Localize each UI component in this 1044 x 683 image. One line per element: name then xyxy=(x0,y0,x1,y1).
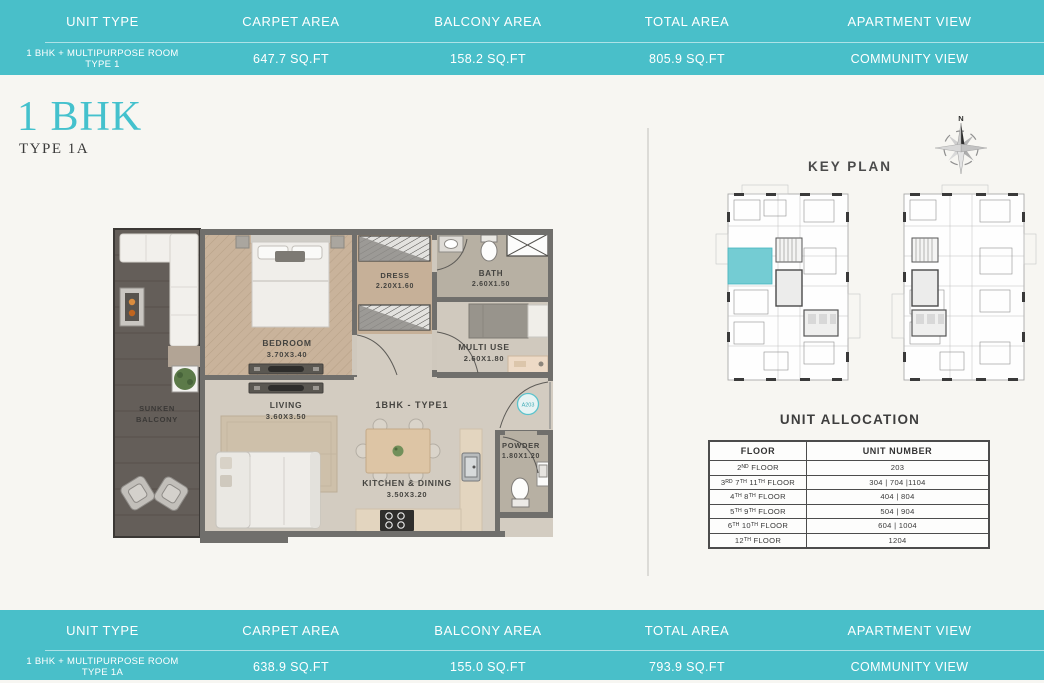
unit-allocation-title: UNIT ALLOCATION xyxy=(740,412,960,427)
label-dress: DRESS xyxy=(380,271,409,280)
sofa xyxy=(216,452,320,528)
cell-unit: 1204 xyxy=(807,533,990,548)
keyplan-building-right xyxy=(884,182,1044,392)
top-spec-bar: UNIT TYPE CARPET AREA BALCONY AREA TOTAL… xyxy=(0,0,1044,75)
page-title: 1 BHK TYPE 1A xyxy=(17,96,142,158)
table-row: 6ᵀᴴ 10ᵀᴴ FLOOR 604 | 1004 xyxy=(709,519,989,534)
unit-tag-badge: A203 xyxy=(518,394,539,415)
label-multiuse-dims: 2.60X1.80 xyxy=(464,354,505,363)
compass-north-label: N xyxy=(958,114,963,123)
top-spec-headers: UNIT TYPE CARPET AREA BALCONY AREA TOTAL… xyxy=(0,0,1044,42)
cell-floor: 4ᵀᴴ 8ᵀᴴ FLOOR xyxy=(709,490,807,505)
fire-pit xyxy=(120,288,144,326)
table-row: 4ᵀᴴ 8ᵀᴴ FLOOR 404 | 804 xyxy=(709,490,989,505)
col-header-floor: FLOOR xyxy=(709,441,807,461)
bottom-spec-values: 1 BHK + MULTIPURPOSE ROOM TYPE 1A 638.9 … xyxy=(0,651,1044,683)
unit-allocation-table: FLOOR UNIT NUMBER 2ᴺᴰ FLOOR 203 3ᴿᴰ 7ᵀᴴ … xyxy=(708,440,990,549)
label-bedroom: BEDROOM xyxy=(262,338,311,348)
table-row: 5ᵀᴴ 9ᵀᴴ FLOOR 504 | 904 xyxy=(709,504,989,519)
cell-floor: 12ᵀᴴ FLOOR xyxy=(709,533,807,548)
section-divider xyxy=(647,128,649,576)
header-carpet-area: CARPET AREA xyxy=(205,14,377,29)
title-main: 1 BHK xyxy=(17,96,142,138)
value-apartment-view: COMMUNITY VIEW xyxy=(775,660,1044,674)
value-unit-type: 1 BHK + MULTIPURPOSE ROOM TYPE 1 xyxy=(0,48,205,70)
unit-type-line1: 1 BHK + MULTIPURPOSE ROOM xyxy=(0,656,205,667)
table-row: 2ᴺᴰ FLOOR 203 xyxy=(709,461,989,476)
header-balcony-area: BALCONY AREA xyxy=(377,623,599,638)
header-apartment-view: APARTMENT VIEW xyxy=(775,623,1044,638)
label-powder: POWDER xyxy=(502,441,540,450)
cell-unit: 203 xyxy=(807,461,990,476)
cell-unit: 404 | 804 xyxy=(807,490,990,505)
unit-tag-text: A203 xyxy=(522,403,535,409)
header-apartment-view: APARTMENT VIEW xyxy=(775,14,1044,29)
table-row: 3ᴿᴰ 7ᵀᴴ 11ᵀᴴ FLOOR 304 | 704 |1104 xyxy=(709,475,989,490)
col-header-unit-number: UNIT NUMBER xyxy=(807,441,990,461)
header-unit-type: UNIT TYPE xyxy=(0,623,205,638)
bottom-spec-headers: UNIT TYPE CARPET AREA BALCONY AREA TOTAL… xyxy=(0,610,1044,650)
label-powder-dims: 1.80X1.20 xyxy=(502,453,540,460)
header-total-area: TOTAL AREA xyxy=(599,623,775,638)
label-kitchen: KITCHEN & DINING xyxy=(362,478,452,488)
keyplan-building-left xyxy=(708,182,868,392)
cell-unit: 304 | 704 |1104 xyxy=(807,475,990,490)
highlighted-unit xyxy=(728,248,772,284)
label-dress-dims: 2.20X1.60 xyxy=(376,283,414,290)
label-balcony-line1: SUNKEN xyxy=(139,404,175,413)
header-total-area: TOTAL AREA xyxy=(599,14,775,29)
value-balcony-area: 155.0 SQ.FT xyxy=(377,660,599,674)
cell-floor: 3ᴿᴰ 7ᵀᴴ 11ᵀᴴ FLOOR xyxy=(709,475,807,490)
label-bath-dims: 2.60X1.50 xyxy=(472,281,510,288)
balcony-side-wall xyxy=(168,346,200,367)
bed xyxy=(236,235,344,327)
keyplan-title: KEY PLAN xyxy=(750,159,950,174)
cell-floor: 2ᴺᴰ FLOOR xyxy=(709,461,807,476)
header-carpet-area: CARPET AREA xyxy=(205,623,377,638)
title-sub: TYPE 1A xyxy=(19,141,142,158)
label-unit-type: 1BHK - TYPE1 xyxy=(375,400,448,410)
label-bedroom-dims: 3.70X3.40 xyxy=(267,350,308,359)
bottom-spec-bar: UNIT TYPE CARPET AREA BALCONY AREA TOTAL… xyxy=(0,610,1044,680)
sunken-balcony xyxy=(114,229,200,537)
unit-type-line1: 1 BHK + MULTIPURPOSE ROOM xyxy=(0,48,205,59)
table-row: 12ᵀᴴ FLOOR 1204 xyxy=(709,533,989,548)
unit-type-line2: TYPE 1A xyxy=(0,667,205,678)
label-living-dims: 3.60X3.50 xyxy=(266,412,307,421)
label-multiuse: MULTI USE xyxy=(458,342,509,352)
value-balcony-area: 158.2 SQ.FT xyxy=(377,52,599,66)
header-unit-type: UNIT TYPE xyxy=(0,14,205,29)
top-spec-values: 1 BHK + MULTIPURPOSE ROOM TYPE 1 647.7 S… xyxy=(0,43,1044,75)
label-bath: BATH xyxy=(479,269,503,278)
value-total-area: 805.9 SQ.FT xyxy=(599,52,775,66)
cell-unit: 504 | 904 xyxy=(807,504,990,519)
label-balcony-line2: BALCONY xyxy=(136,415,178,424)
table-header-row: FLOOR UNIT NUMBER xyxy=(709,441,989,461)
value-carpet-area: 638.9 SQ.FT xyxy=(205,660,377,674)
label-living: LIVING xyxy=(270,400,303,410)
header-balcony-area: BALCONY AREA xyxy=(377,14,599,29)
label-kitchen-dims: 3.50X3.20 xyxy=(387,490,428,499)
cell-floor: 5ᵀᴴ 9ᵀᴴ FLOOR xyxy=(709,504,807,519)
value-carpet-area: 647.7 SQ.FT xyxy=(205,52,377,66)
unit-type-line2: TYPE 1 xyxy=(0,59,205,70)
value-total-area: 793.9 SQ.FT xyxy=(599,660,775,674)
floor-plan: BEDROOM 3.70X3.40 DRESS 2.20X1.60 BATH 2… xyxy=(100,225,560,555)
plant xyxy=(172,366,198,392)
cell-floor: 6ᵀᴴ 10ᵀᴴ FLOOR xyxy=(709,519,807,534)
cell-unit: 604 | 1004 xyxy=(807,519,990,534)
value-apartment-view: COMMUNITY VIEW xyxy=(775,52,1044,66)
value-unit-type: 1 BHK + MULTIPURPOSE ROOM TYPE 1A xyxy=(0,656,205,678)
